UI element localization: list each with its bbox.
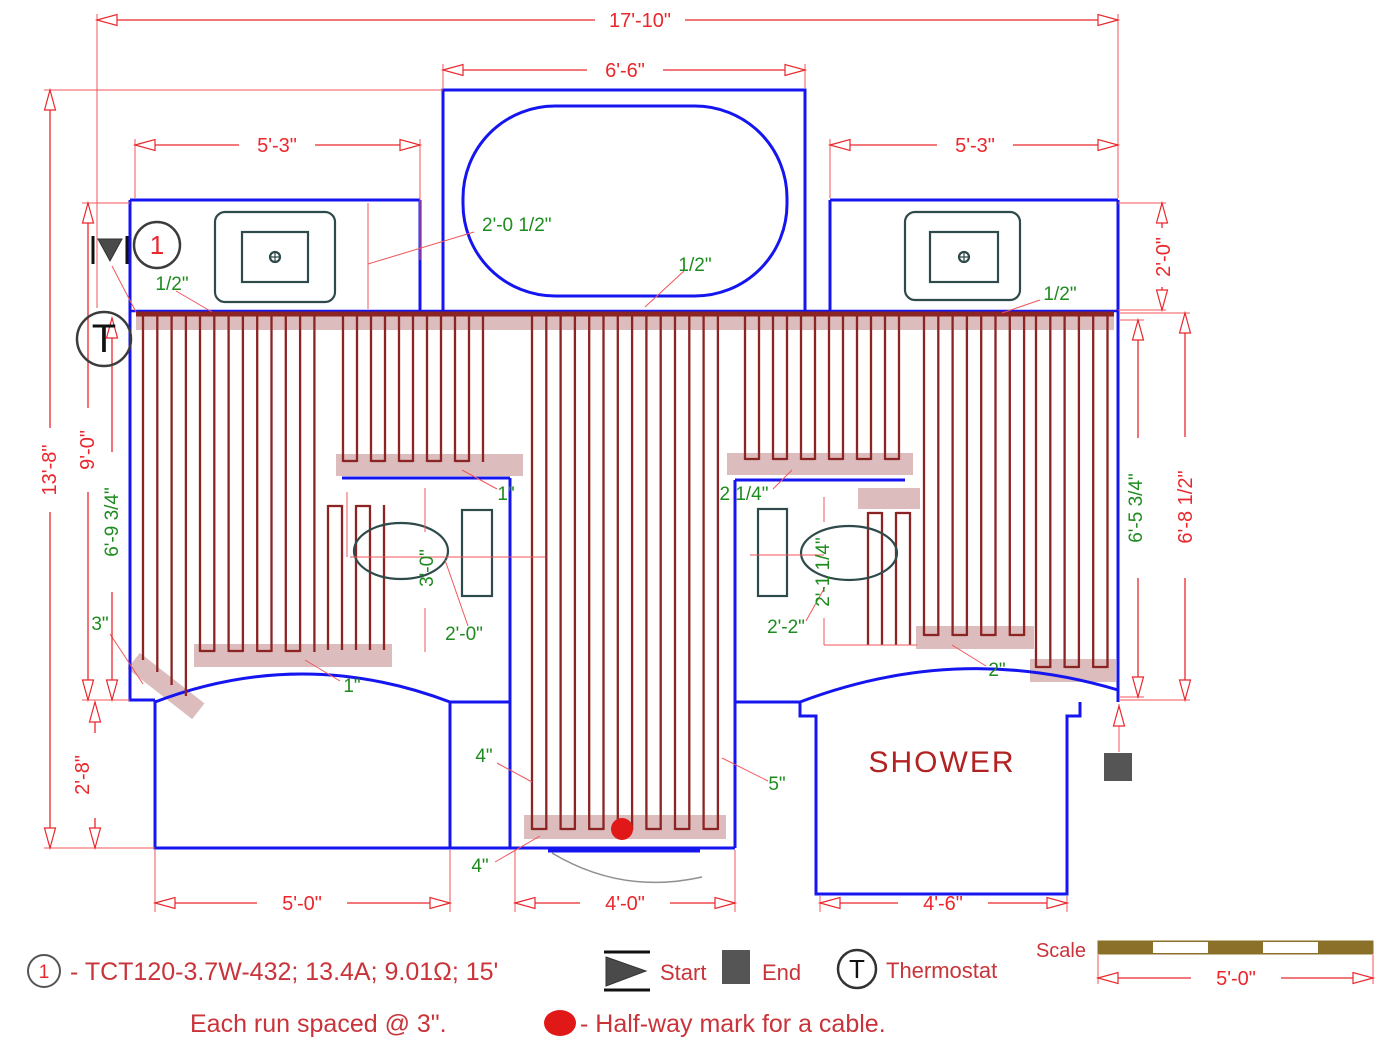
cable-highlight-band	[916, 626, 1034, 649]
ann-door-gap-right: 5"	[768, 774, 785, 795]
dim-left-room-width: 5'-0"	[282, 893, 322, 915]
ann-toilet-left-offset: 2'-0"	[445, 624, 483, 645]
arrowhead	[1157, 203, 1168, 223]
arrowhead	[107, 680, 118, 700]
arrowhead	[83, 203, 94, 223]
ann-gap-tub: 1/2"	[678, 255, 711, 276]
arrowhead	[1133, 677, 1144, 697]
sink-right-drain-icon	[958, 251, 970, 263]
arrowhead	[135, 140, 155, 151]
start-marker-icon	[93, 236, 127, 264]
halfway-mark-dot	[611, 818, 633, 840]
halfway-legend-icon	[544, 1010, 576, 1036]
legend-halfway-note: - Half-way mark for a cable.	[580, 1010, 886, 1038]
arrowhead	[443, 65, 463, 76]
arrowhead	[1180, 680, 1191, 700]
extension-line	[445, 560, 468, 626]
arrowhead	[715, 898, 735, 909]
ann-gap-right: 1/2"	[1043, 284, 1076, 305]
scale-bar	[1098, 941, 1373, 954]
arrowhead	[1157, 290, 1168, 310]
extension-line	[722, 758, 768, 781]
floor-heating-plan: 17'-10" 6'-6" 5'-3" 5'-3" 13'-8" 9'-0" 6…	[0, 0, 1400, 1049]
scale-label: Scale	[1036, 940, 1086, 962]
ann-door-gap-left: 4"	[475, 746, 492, 767]
legend-circuit-spec: - TCT120-3.7W-432; 13.4A; 9.01Ω; 15'	[70, 958, 498, 986]
toilet-alcove-right-wall	[735, 480, 905, 848]
arrowhead	[83, 680, 94, 700]
thermostat-symbol: T	[92, 317, 116, 361]
circuit-badge-number: 1	[150, 230, 164, 260]
dim-vanity-right-depth: 2'-0"	[1153, 237, 1175, 277]
arrowhead	[90, 828, 101, 848]
cable-highlight-band	[336, 454, 523, 476]
ann-gap-left: 1/2"	[155, 274, 188, 295]
shower-room-label: SHOWER	[869, 746, 1016, 779]
ann-door-gap-bottom: 4"	[471, 856, 488, 877]
toilet-right-tank	[758, 509, 787, 596]
legend-end-label: End	[762, 960, 801, 985]
extension-line	[497, 763, 532, 782]
ann-shower-gap: 2"	[988, 660, 1005, 681]
arrowhead	[830, 140, 850, 151]
legend: 1 - TCT120-3.7W-432; 13.4A; 9.01Ω; 15' S…	[28, 940, 1373, 1038]
dim-right-height: 6'-8 1/2"	[1175, 470, 1197, 543]
arrowhead	[1180, 313, 1191, 333]
arrowhead	[400, 140, 420, 151]
extension-line	[112, 266, 136, 312]
dim-overall-height: 13'-8"	[39, 445, 61, 496]
arrowhead	[1353, 973, 1373, 984]
bathtub	[463, 106, 787, 296]
shower-outline	[800, 312, 1118, 894]
dim-left-height: 9'-0"	[77, 430, 99, 470]
arrowhead	[1047, 898, 1067, 909]
arrowhead	[45, 90, 56, 110]
legend-thermostat-label: Thermostat	[886, 958, 997, 983]
arrowhead	[90, 702, 101, 722]
door-swing-arc	[552, 853, 702, 882]
ann-band-left-gap: 1"	[497, 484, 514, 505]
dim-tub-width: 6'-6"	[605, 60, 645, 82]
dim-overall-width: 17'-10"	[609, 10, 671, 32]
arrowhead	[1114, 706, 1125, 726]
dim-shower-width: 4'-6"	[923, 893, 963, 915]
arrowhead	[1098, 140, 1118, 151]
ann-band-right-gap: 2 1/4"	[719, 484, 768, 505]
dim-door-width: 4'-0"	[605, 893, 645, 915]
ann-wall-gap: 3"	[91, 614, 108, 635]
sink-left-drain-icon	[269, 251, 281, 263]
legend-start-label: Start	[660, 960, 706, 985]
dim-vanity-right-width: 5'-3"	[955, 135, 995, 157]
arrowhead	[785, 65, 805, 76]
arrowhead	[820, 898, 840, 909]
arrowhead	[1098, 15, 1118, 26]
cable-highlight-band	[858, 488, 920, 509]
dim-cable-right-height: 6'-5 3/4"	[1126, 473, 1147, 543]
end-legend-icon	[722, 950, 750, 984]
arrowhead	[1098, 973, 1118, 984]
ann-toilet-right-offset: 2'-2"	[767, 617, 805, 638]
legend-spacing-note: Each run spaced @ 3".	[190, 1010, 447, 1038]
cable-end-marker	[1104, 753, 1132, 781]
legend-thermostat-symbol: T	[849, 954, 865, 984]
cable-highlight-band	[194, 644, 392, 667]
ann-sink-offset: 2'-0 1/2"	[482, 215, 552, 236]
arrowhead	[155, 898, 175, 909]
start-legend-icon	[604, 952, 650, 990]
ann-toilet-left-height: 3'-0"	[417, 549, 438, 587]
arrowhead	[97, 15, 117, 26]
dim-cable-left-height: 6'-9 3/4"	[102, 487, 123, 557]
dim-left-room-drop: 2'-8"	[72, 755, 94, 795]
extension-line	[645, 271, 684, 307]
arrowhead	[1133, 320, 1144, 340]
cable-highlight-band	[128, 653, 205, 719]
legend-circuit-number: 1	[39, 962, 50, 983]
ann-arc-gap: 1"	[343, 676, 360, 697]
dim-scale-bar: 5'-0"	[1216, 968, 1256, 990]
arrowhead	[430, 898, 450, 909]
dim-vanity-left-width: 5'-3"	[257, 135, 297, 157]
arrowhead	[515, 898, 535, 909]
arrowhead	[45, 828, 56, 848]
sink-right-counter-cutout	[905, 212, 1020, 300]
toilet-left-tank	[462, 510, 492, 596]
ann-toilet-right-center: 2'-1 1/4"	[813, 537, 834, 607]
